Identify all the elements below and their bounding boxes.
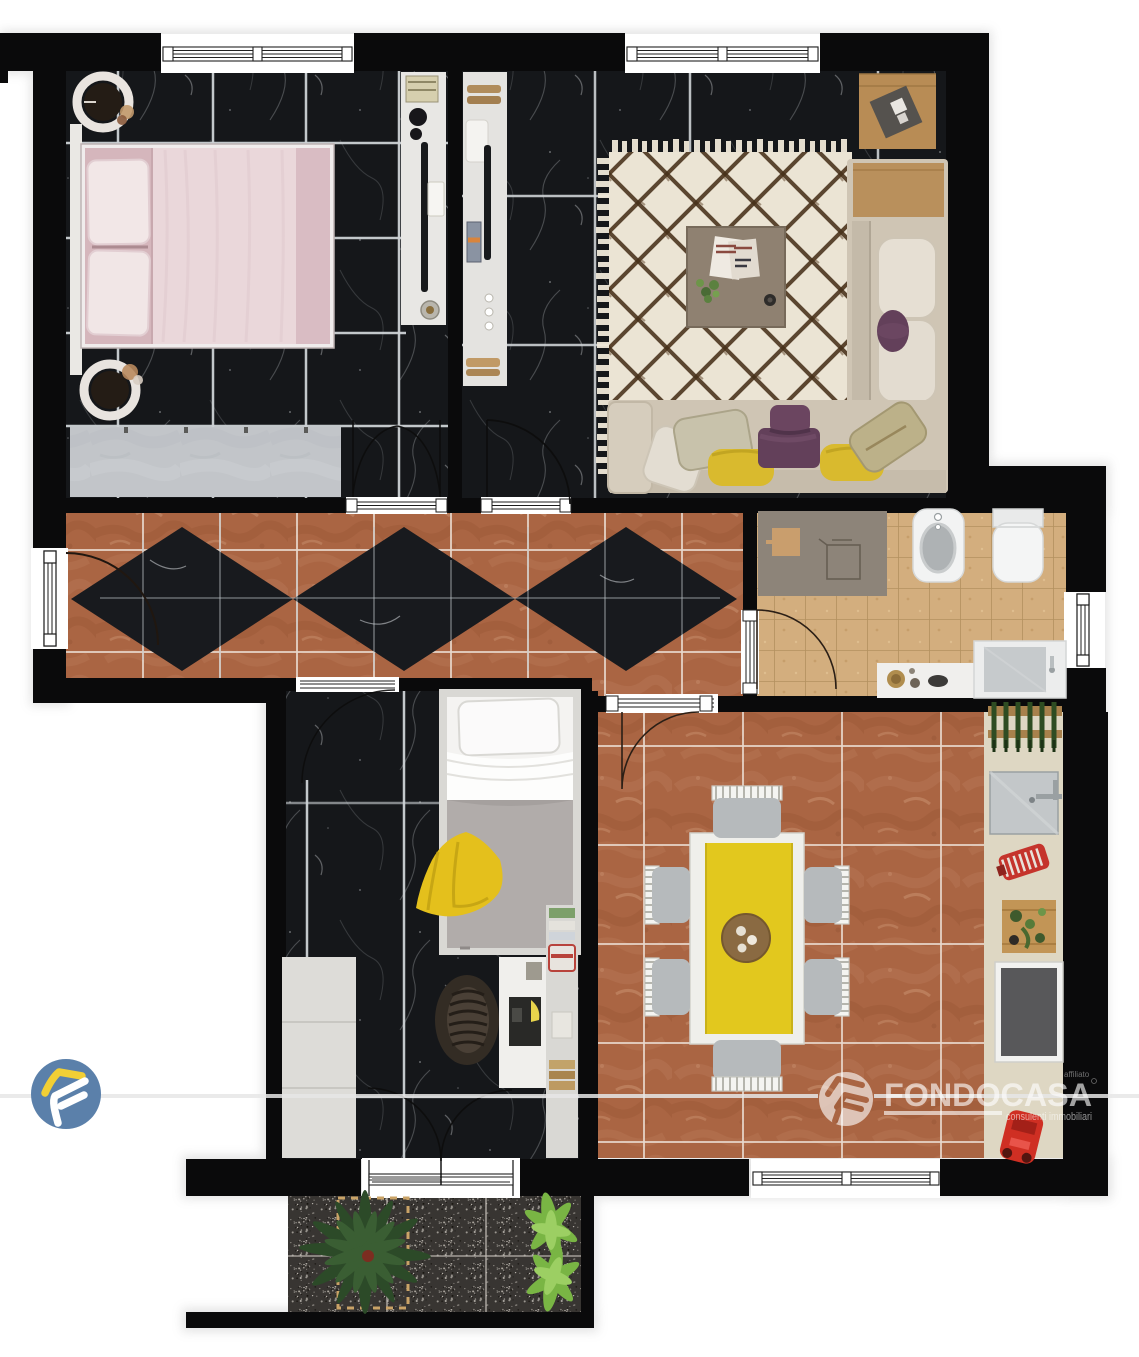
svg-text:consulenti immobiliari: consulenti immobiliari: [1006, 1111, 1092, 1123]
svg-text:FONDOCASA: FONDOCASA: [884, 1077, 1092, 1113]
svg-text:affiliato: affiliato: [1064, 1070, 1090, 1079]
